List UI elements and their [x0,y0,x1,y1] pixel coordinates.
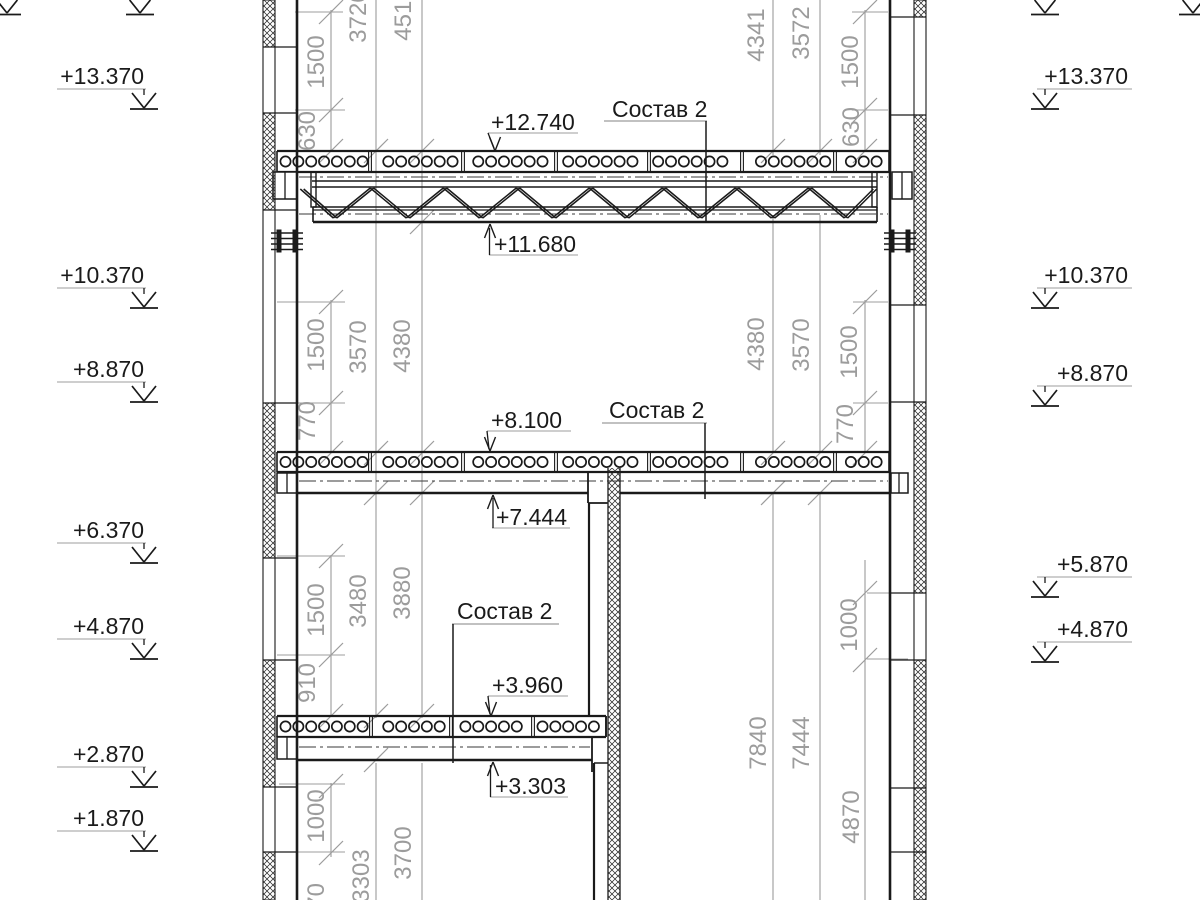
dimension-label: 7840 [745,716,772,769]
dimension-label: 770 [832,404,859,444]
elevation-callout-label: +8.100 [491,407,562,433]
elevation-callout-label: +11.680 [494,231,576,257]
dimension-label: 7444 [788,716,815,769]
elevation-callout-label: +12.740 [491,109,575,135]
dimension-label: 1500 [303,583,330,636]
section-drawing: 1500630372045101500770357043801500910348… [0,0,1200,900]
bearing-details [271,172,916,759]
dimension-label: 4380 [389,319,416,372]
datum-label: +4.870 [73,613,144,639]
datum-label: +2.870 [73,741,144,767]
dimension-label: 1500 [837,35,864,88]
elevation-callout-label: +3.960 [492,672,563,698]
dimension-label: 3570 [788,318,815,371]
dimension-label: 3572 [788,6,815,59]
dimension-label: 3880 [389,566,416,619]
walls [263,0,926,900]
datum-label: +10.370 [60,262,144,288]
datum-label: +10.370 [1044,262,1128,288]
dimension-label: 3720 [345,0,372,43]
datum-label: +5.870 [1057,551,1128,577]
dimension-label: 4380 [743,317,770,370]
steel-truss [299,172,888,222]
hollow-core-slabs [277,151,889,737]
dimension-label: 3480 [345,574,372,627]
elevation-callout-label: +3.303 [495,773,566,799]
datum-label: +13.370 [1044,63,1128,89]
dimension-label: 4341 [743,8,770,61]
dimension-label: 4510 [390,0,417,41]
datum-label: +13.370 [60,63,144,89]
datum-label: +6.370 [73,517,144,543]
composition-label: Состав 2 [609,397,704,423]
datum-marks: +13.370+10.370+8.870+6.370+4.870+2.870+1… [0,0,1200,851]
dimension-label: 1500 [303,35,330,88]
dimension-label: 3570 [345,320,372,373]
datum-label: +1.870 [73,805,144,831]
composition-label: Состав 2 [457,598,552,624]
elevation-callouts: +12.740+11.680+8.100+7.444+3.960+3.303 [485,109,579,799]
dimension-label: 630 [838,107,865,147]
datum-label: +8.870 [1057,360,1128,386]
dimension-label: 3303 [348,849,375,900]
drawing-canvas: 1500630372045101500770357043801500910348… [0,0,1200,900]
datum-label: +8.870 [73,356,144,382]
dimension-label: 1500 [303,318,330,371]
dimension-label: 970 [303,883,330,900]
dimension-label: 3700 [390,826,417,879]
elevation-callout-label: +7.444 [496,504,567,530]
dimension-label: 4870 [838,790,865,843]
dimension-label: 1500 [836,325,863,378]
dimension-label: 1000 [303,789,330,842]
dimension-label: 1000 [836,598,863,651]
datum-label: +4.870 [1057,616,1128,642]
composition-label: Состав 2 [612,96,707,122]
